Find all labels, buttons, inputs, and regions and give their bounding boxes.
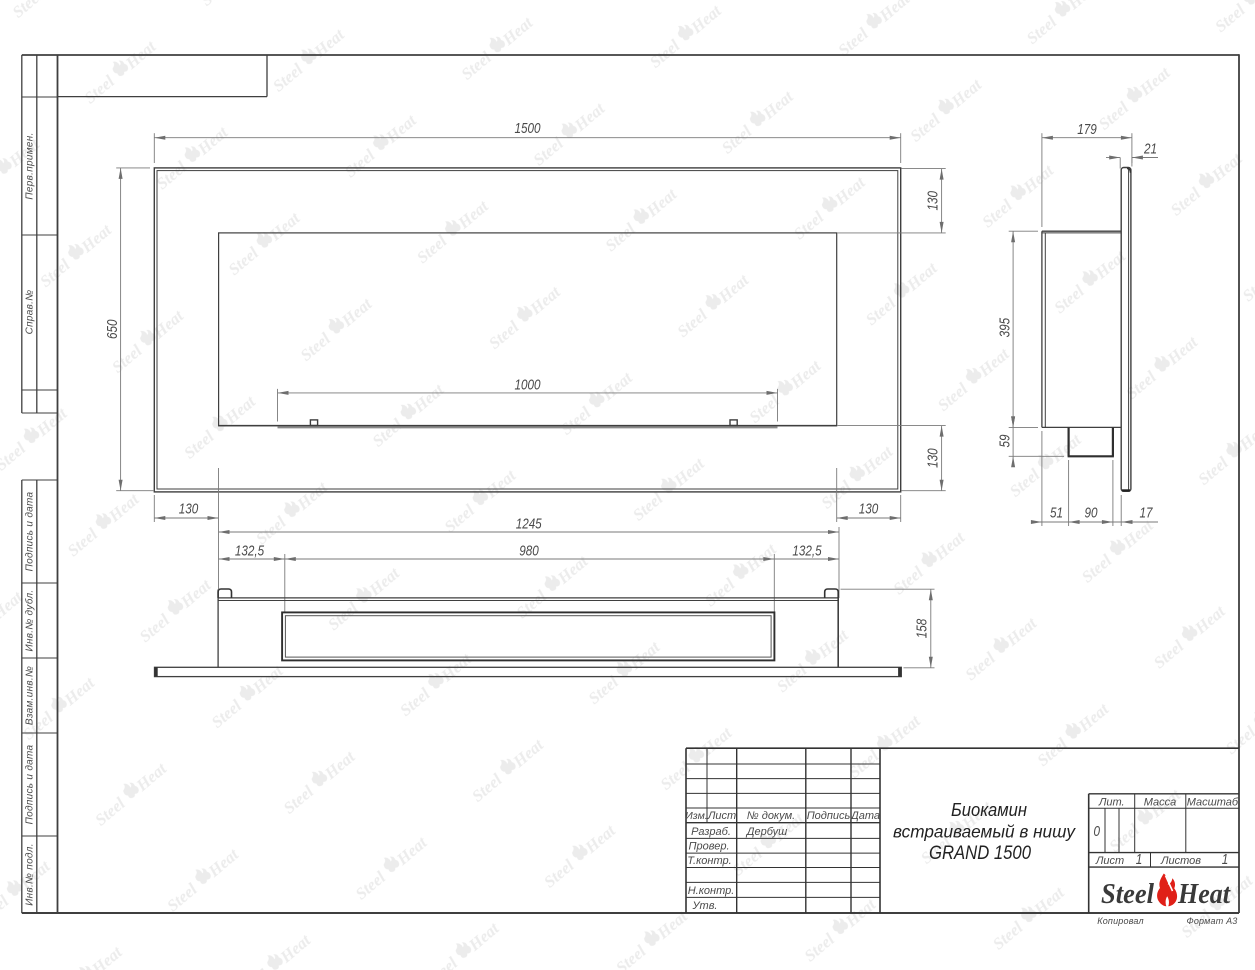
svg-text:Подпись: Подпись	[807, 810, 851, 822]
svg-text:980: 980	[519, 543, 539, 560]
svg-text:90: 90	[1085, 505, 1099, 522]
svg-text:Провер.: Провер.	[689, 841, 730, 853]
svg-text:Биокамин: Биокамин	[951, 800, 1027, 820]
svg-text:158: 158	[914, 618, 931, 638]
svg-text:Копировал: Копировал	[1097, 916, 1144, 926]
svg-text:130: 130	[925, 448, 942, 468]
svg-text:59: 59	[996, 434, 1013, 448]
svg-text:Разраб.: Разраб.	[691, 826, 731, 838]
svg-text:132,5: 132,5	[235, 543, 265, 560]
svg-text:130: 130	[179, 501, 199, 518]
svg-text:Т.контр.: Т.контр.	[687, 855, 731, 867]
svg-text:Инв.№ дубл.: Инв.№ дубл.	[24, 589, 36, 651]
svg-text:Утв.: Утв.	[692, 900, 718, 912]
svg-text:GRAND 1500: GRAND 1500	[929, 843, 1031, 864]
svg-text:179: 179	[1077, 121, 1097, 138]
svg-text:№ докум.: № докум.	[747, 810, 795, 822]
svg-text:Подпись и дата: Подпись и дата	[25, 491, 36, 571]
svg-text:1: 1	[1136, 851, 1143, 868]
svg-text:Взам.инв.№: Взам.инв.№	[25, 666, 36, 725]
svg-text:Лит.: Лит.	[1098, 796, 1125, 808]
svg-text:Н.контр.: Н.контр.	[688, 885, 735, 897]
svg-text:Изм.: Изм.	[685, 810, 707, 822]
svg-text:Подпись и дата: Подпись и дата	[25, 744, 36, 824]
svg-text:17: 17	[1140, 505, 1154, 522]
svg-text:встраиваемый в нишу: встраиваемый в нишу	[893, 822, 1076, 842]
svg-text:Дербуш: Дербуш	[745, 826, 788, 838]
svg-text:130: 130	[925, 190, 942, 210]
svg-text:Steel: Steel	[1101, 878, 1155, 910]
svg-text:395: 395	[996, 317, 1013, 337]
svg-text:0: 0	[1094, 823, 1101, 840]
svg-text:Справ.№: Справ.№	[25, 290, 36, 335]
svg-text:1500: 1500	[515, 120, 542, 137]
svg-text:1000: 1000	[515, 376, 542, 393]
svg-text:Дата: Дата	[849, 810, 880, 822]
svg-text:132,5: 132,5	[792, 543, 822, 560]
svg-text:650: 650	[104, 319, 121, 339]
svg-text:Масштаб: Масштаб	[1187, 796, 1239, 808]
svg-text:Масса: Масса	[1144, 796, 1177, 808]
svg-text:21: 21	[1143, 141, 1157, 158]
svg-text:Формат А3: Формат А3	[1186, 916, 1237, 926]
svg-text:Heat: Heat	[1177, 878, 1231, 910]
svg-text:Листов: Листов	[1160, 855, 1201, 867]
svg-text:51: 51	[1050, 505, 1063, 522]
svg-text:1245: 1245	[516, 516, 543, 533]
svg-text:Инв.№ подл.: Инв.№ подл.	[25, 843, 36, 906]
svg-text:130: 130	[859, 501, 879, 518]
svg-text:1: 1	[1222, 851, 1229, 868]
svg-text:Лист: Лист	[707, 810, 736, 822]
svg-text:Перв.примен.: Перв.примен.	[25, 132, 36, 199]
svg-text:Лист: Лист	[1095, 855, 1124, 867]
